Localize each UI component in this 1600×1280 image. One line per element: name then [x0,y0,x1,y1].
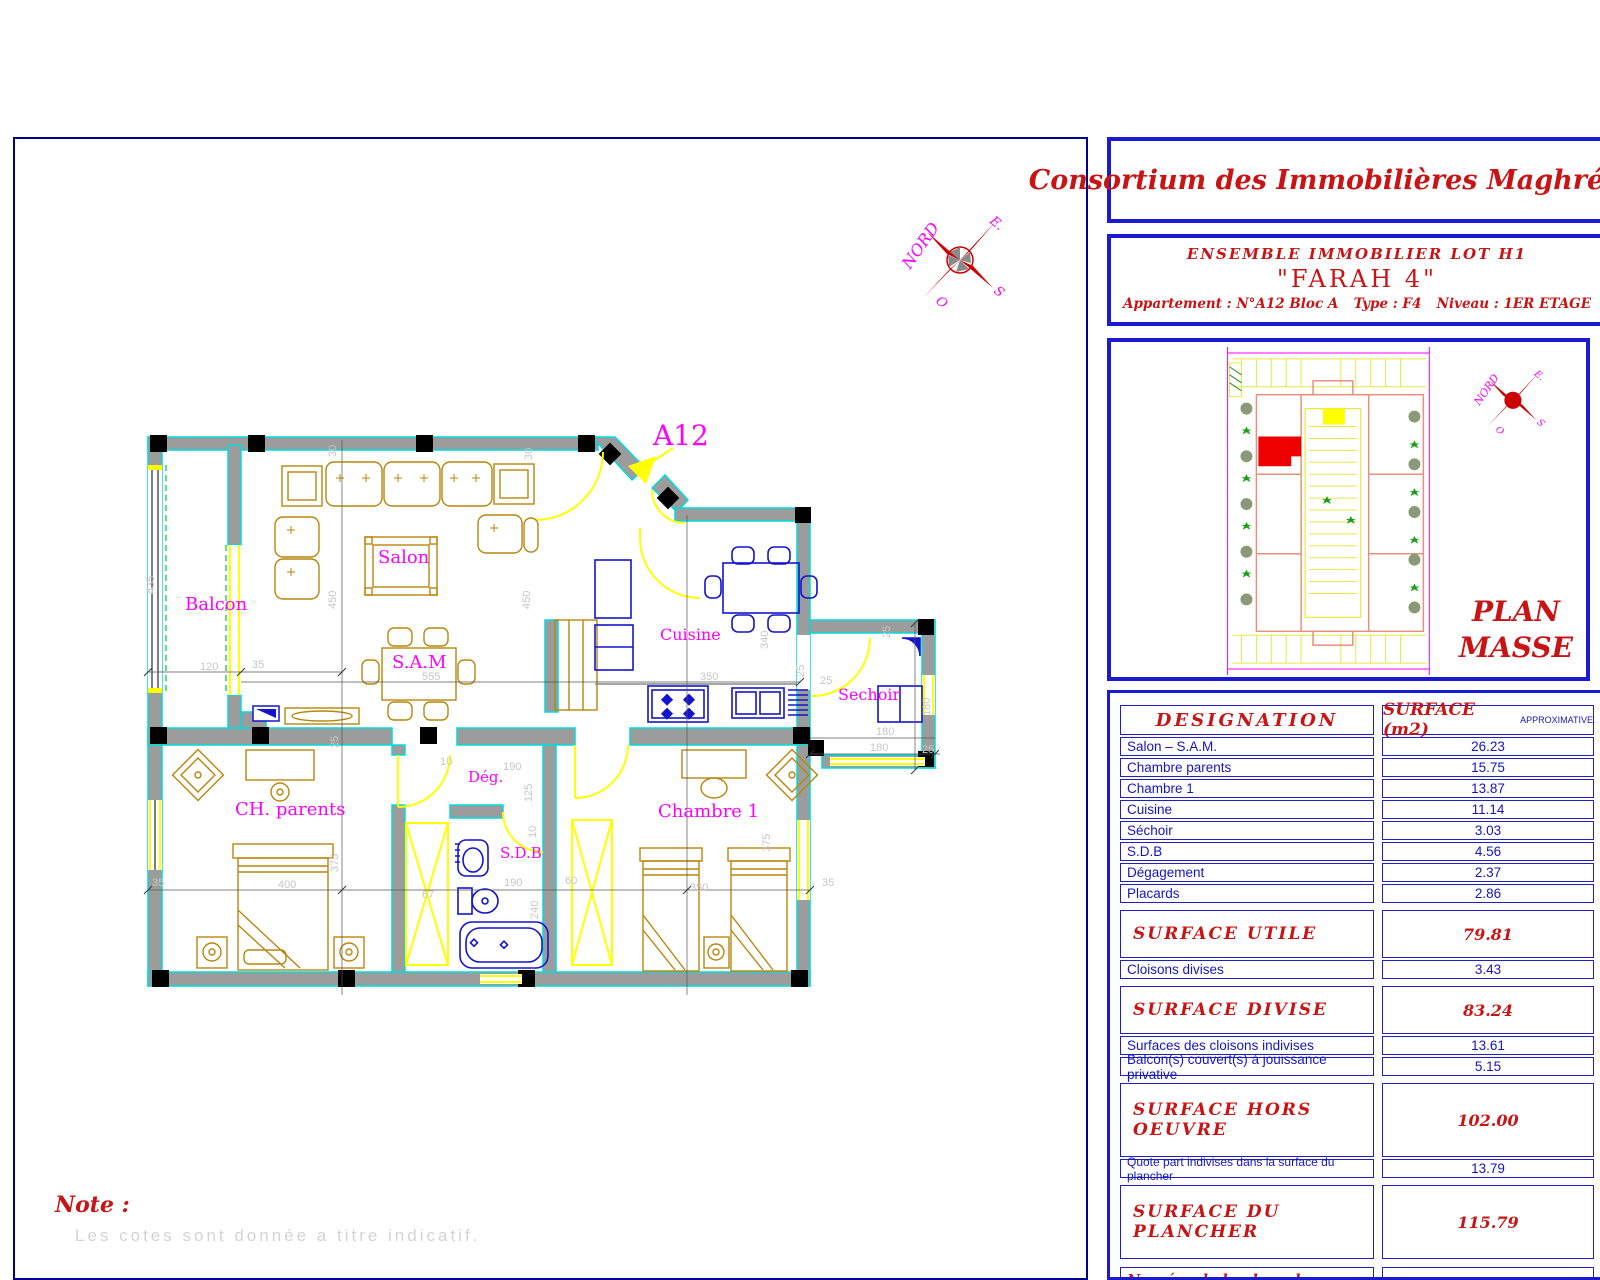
svg-text:30: 30 [327,445,339,457]
svg-text:O: O [1493,424,1506,436]
plan-masse-box: NORD E. O S PLAN MASSE [1107,338,1590,681]
svg-text:120: 120 [200,661,218,673]
svg-text:240: 240 [529,901,541,919]
svg-text:450: 450 [521,591,533,609]
svg-text:35: 35 [252,659,264,671]
note-text: Les cotes sont donnée a titre indicatif. [75,1226,480,1246]
label-cuisine: Cuisine [660,625,721,644]
table-row: Balcon(s) couvert(s) à jouissance privat… [1120,1057,1594,1076]
svg-text:25: 25 [922,744,934,756]
apartment-type: Type : F4 [1354,296,1422,312]
label-sechoir: Sechoir [838,685,900,704]
svg-text:E.: E. [1531,368,1546,383]
svg-text:10: 10 [440,756,452,768]
label-ch-parents: CH. parents [235,799,346,820]
label-sdb: S.D.B [500,844,542,862]
header-surface: SURFACE (m2) APPROXIMATIVE [1382,705,1594,735]
compass-north-label: NORD [897,219,943,273]
project-name: "FARAH 4" [1111,265,1600,293]
svg-text:25: 25 [881,626,893,638]
apartment-info: Appartement : N°A12 Bloc A Type : F4 Niv… [1111,293,1600,312]
site-roads [1228,347,1430,675]
svg-text:340: 340 [759,631,771,649]
site-plan-thumbnail [1201,347,1441,675]
table-row-surface-plancher: SURFACE DU PLANCHER115.79 [1120,1185,1594,1259]
svg-text:30: 30 [523,448,535,460]
table-row-surface-hors-oeuvre: SURFACE HORS OEUVRE102.00 [1120,1083,1594,1157]
svg-text:180: 180 [870,742,888,754]
svg-text:67: 67 [422,889,434,901]
site-compass: NORD E. O S [1459,356,1549,436]
svg-text:10: 10 [527,826,539,838]
salon-furniture [275,462,538,599]
header-designation: DESIGNATION [1120,705,1374,735]
svg-text:190: 190 [503,761,521,773]
table-row-parking: Numéro de la place de parking-- [1120,1267,1594,1280]
table-row: Chambre parents15.75 [1120,758,1594,777]
chambre1-furniture [640,750,817,971]
plan-masse-title: PLAN MASSE [1441,594,1591,666]
svg-text:25: 25 [795,665,807,677]
svg-text:NORD: NORD [1471,371,1502,408]
svg-text:35: 35 [152,877,164,889]
compass-west-label: O [932,294,950,310]
svg-text:435: 435 [145,576,157,594]
svg-text:25: 25 [820,675,832,687]
svg-text:180: 180 [921,698,933,716]
hatch-corner [1230,363,1242,397]
svg-text:400: 400 [278,879,296,891]
table-row: Cuisine11.14 [1120,800,1594,819]
unit-label: A12 [652,420,709,452]
table-row: Chambre 113.87 [1120,779,1594,798]
svg-text:350: 350 [690,882,708,894]
note-title: Note : [55,1192,130,1218]
svg-text:125: 125 [523,784,535,802]
svg-text:60: 60 [565,875,577,887]
table-row: Séchoir3.03 [1120,821,1594,840]
svg-text:375: 375 [761,834,773,852]
svg-text:25: 25 [329,736,341,748]
company-title-box: Consortium des Immobilières Maghrébines [1107,137,1600,223]
svg-text:35: 35 [822,877,834,889]
floor-plan: A12 [140,420,960,1000]
tv-unit [253,706,279,721]
svg-text:375: 375 [329,854,341,872]
compass-south-label: S [990,284,1007,301]
table-row-surface-divise: SURFACE DIVISE83.24 [1120,986,1594,1034]
compass-rose: NORD E. O S [885,198,1010,310]
apartment-number: Appartement : N°A12 Bloc A [1123,296,1338,312]
svg-text:S: S [1535,417,1547,430]
table-row-surface-utile: SURFACE UTILE79.81 [1120,910,1594,958]
table-row: Placards2.86 [1120,884,1594,903]
wardrobes [406,820,612,965]
company-name: Consortium des Immobilières Maghrébines [1029,165,1600,196]
surfaces-table: DESIGNATION SURFACE (m2) APPROXIMATIVE S… [1107,690,1600,1280]
apartment-level: Niveau : 1ER ETAGE [1437,296,1591,312]
label-salon: Salon [378,547,430,568]
label-degagement: Dég. [468,768,503,786]
table-header: DESIGNATION SURFACE (m2) APPROXIMATIVE [1120,705,1594,735]
table-row: Cloisons divises3.43 [1120,960,1594,979]
site-building [1256,381,1423,645]
table-row: Salon – S.A.M.26.23 [1120,737,1594,756]
label-sam: S.A.M [392,652,447,673]
project-box: ENSEMBLE IMMOBILIER LOT H1 "FARAH 4" App… [1107,234,1600,326]
table-row: S.D.B4.56 [1120,842,1594,861]
project-line: ENSEMBLE IMMOBILIER LOT H1 [1111,245,1600,263]
table-row: Dégagement2.37 [1120,863,1594,882]
svg-text:450: 450 [327,591,339,609]
compass-east-label: E. [986,213,1007,234]
cad-sheet: { "titleblock": { "company": "Consortium… [0,0,1600,1280]
sechoir-furniture [878,638,922,722]
svg-text:350: 350 [700,671,718,683]
highlighted-unit [1258,436,1301,466]
label-chambre1: Chambre 1 [658,801,759,822]
svg-text:180: 180 [876,726,894,738]
svg-text:190: 190 [504,877,522,889]
table-row: Quote part indivises dans la surface du … [1120,1159,1594,1178]
label-balcon: Balcon [185,594,248,615]
